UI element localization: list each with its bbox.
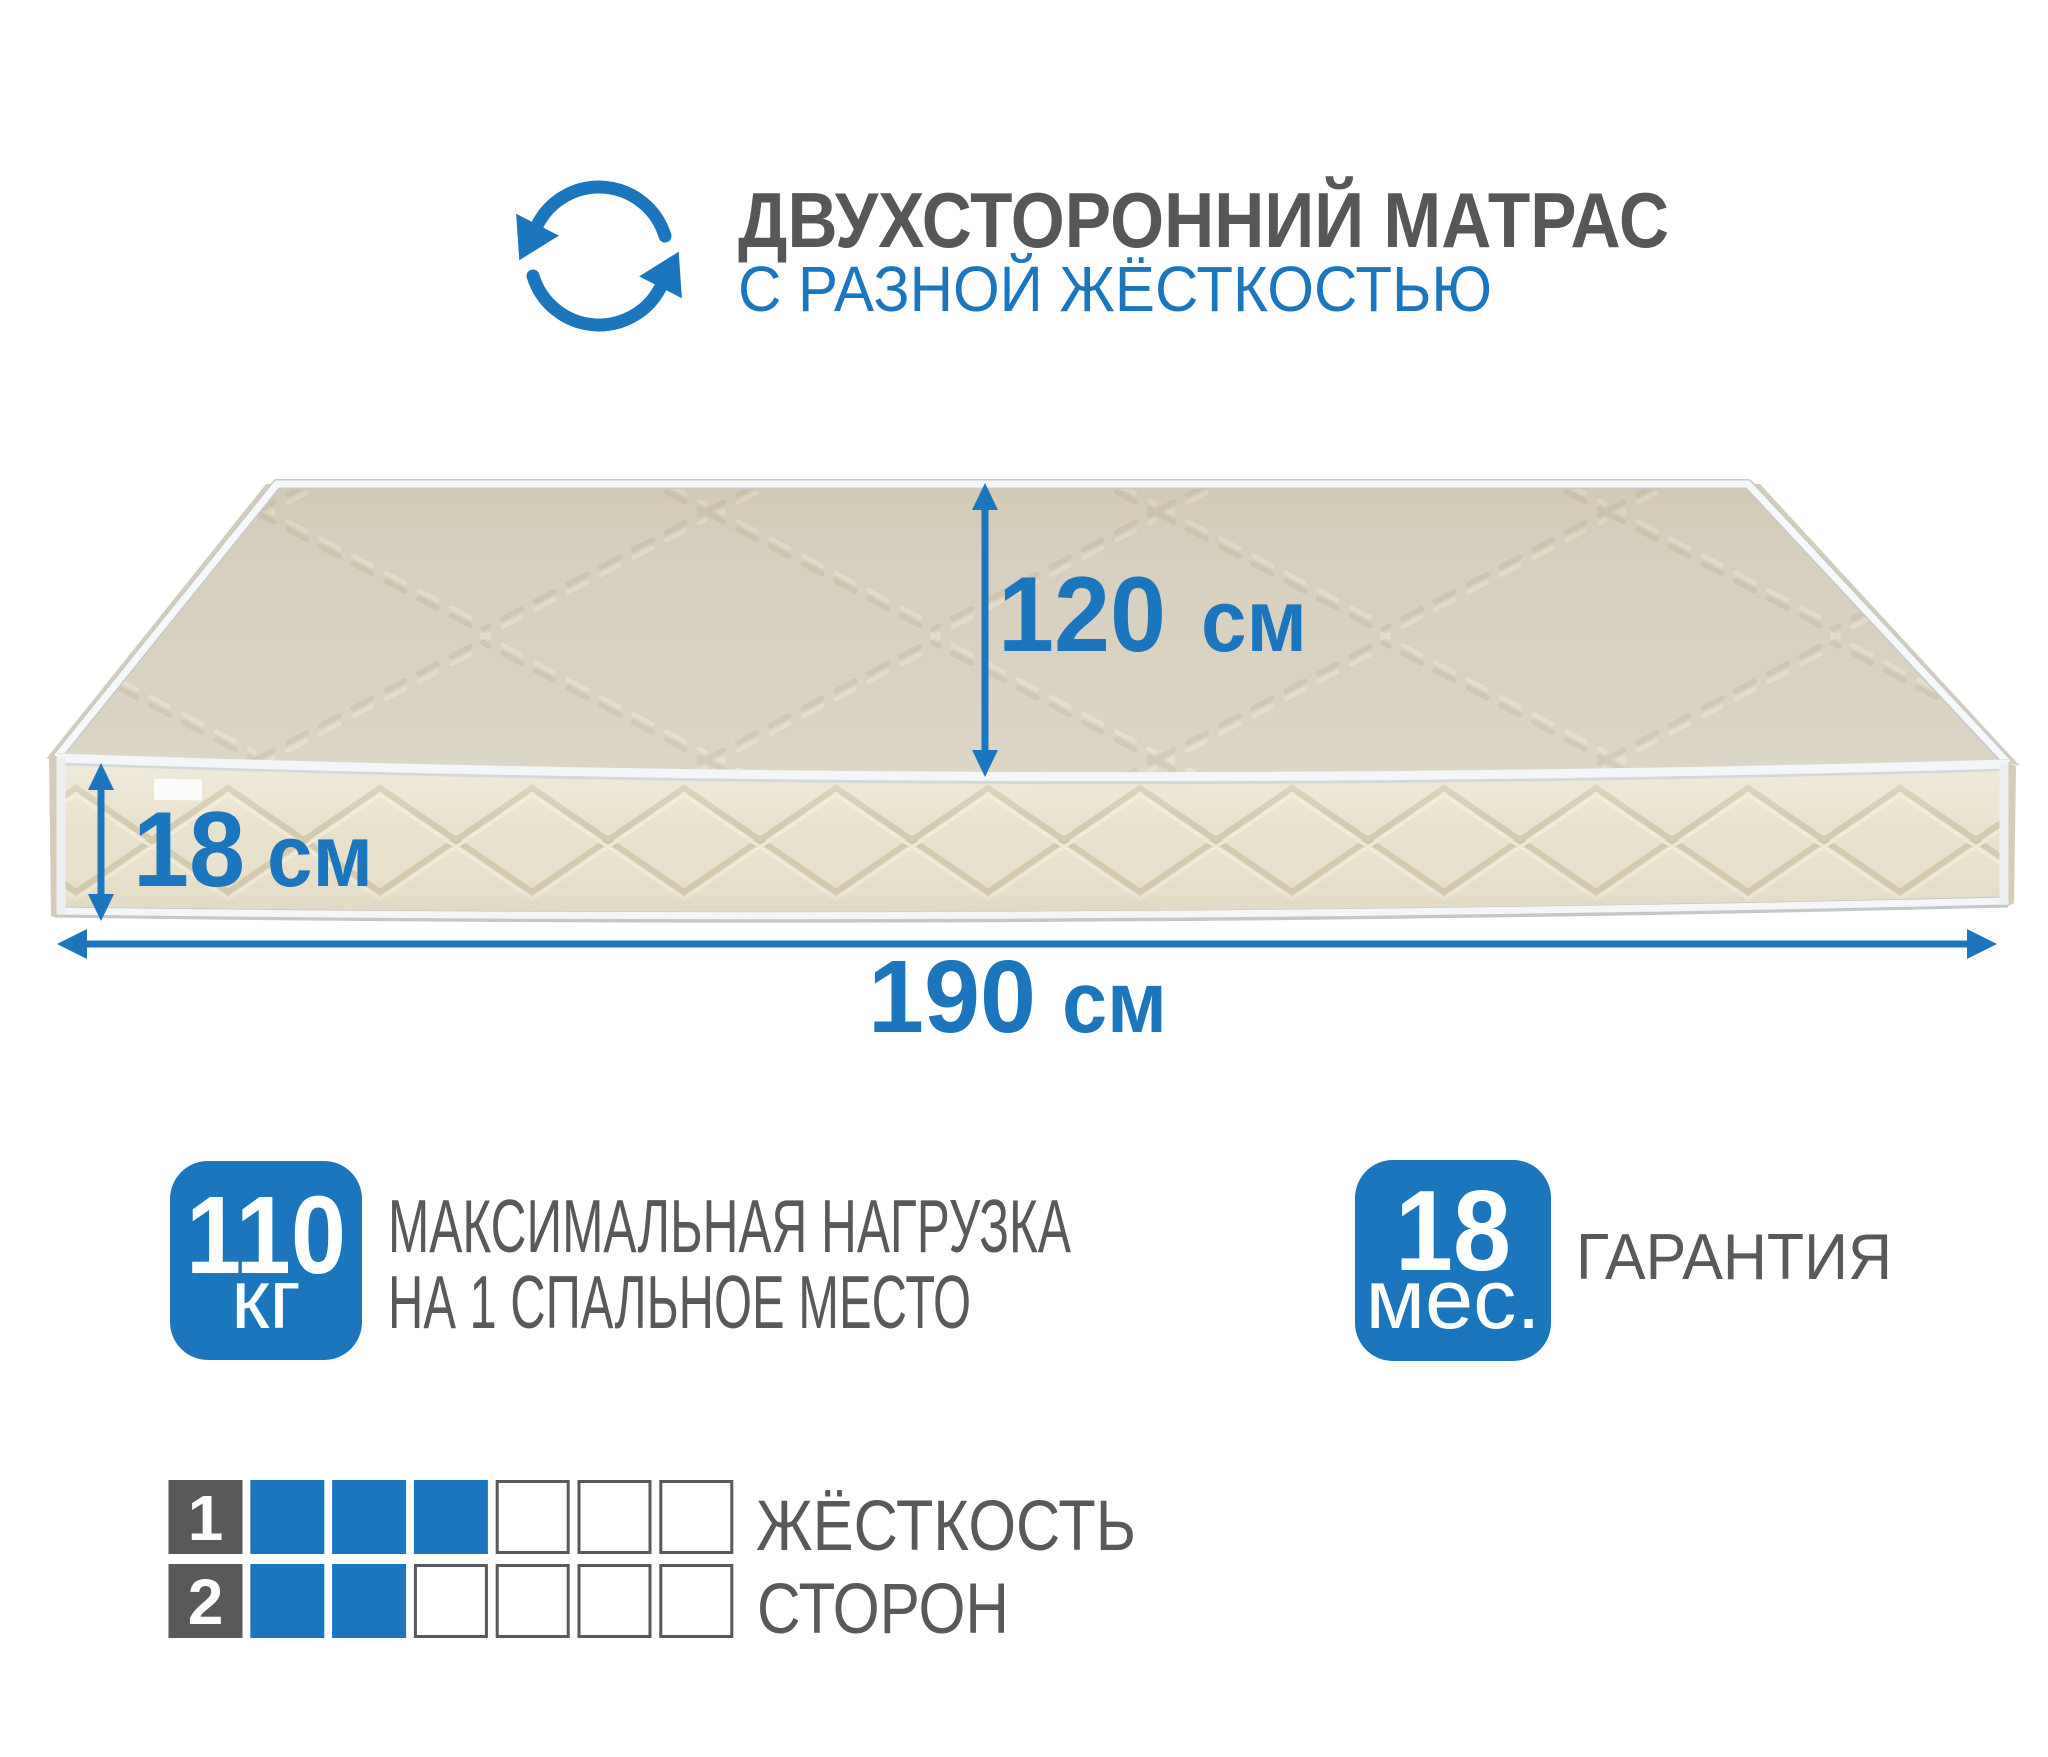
svg-text:18: 18: [133, 789, 245, 909]
svg-text:190: 190: [868, 939, 1036, 1054]
svg-text:ГАРАНТИЯ: ГАРАНТИЯ: [1576, 1220, 1892, 1293]
svg-text:120: 120: [998, 554, 1166, 674]
svg-text:2: 2: [188, 1566, 224, 1638]
svg-text:см: см: [1062, 954, 1167, 1051]
svg-text:МАКСИМАЛЬНАЯ НАГРУЗКА: МАКСИМАЛЬНАЯ НАГРУЗКА: [388, 1184, 1071, 1268]
svg-text:ДВУХСТОРОННИЙ МАТРАС: ДВУХСТОРОННИЙ МАТРАС: [738, 176, 1669, 264]
svg-text:см: см: [1201, 571, 1307, 670]
svg-text:кг: кг: [231, 1252, 301, 1346]
svg-text:ЖЁСТКОСТЬ: ЖЁСТКОСТЬ: [756, 1487, 1136, 1566]
svg-text:НА 1 СПАЛЬНОЕ МЕСТО: НА 1 СПАЛЬНОЕ МЕСТО: [388, 1260, 971, 1344]
svg-text:1: 1: [188, 1482, 224, 1554]
svg-text:С РАЗНОЙ ЖЁСТКОСТЬЮ: С РАЗНОЙ ЖЁСТКОСТЬЮ: [738, 252, 1492, 325]
svg-text:мес.: мес.: [1366, 1252, 1541, 1346]
svg-text:СТОРОН: СТОРОН: [757, 1570, 1009, 1649]
svg-text:см: см: [267, 806, 373, 905]
